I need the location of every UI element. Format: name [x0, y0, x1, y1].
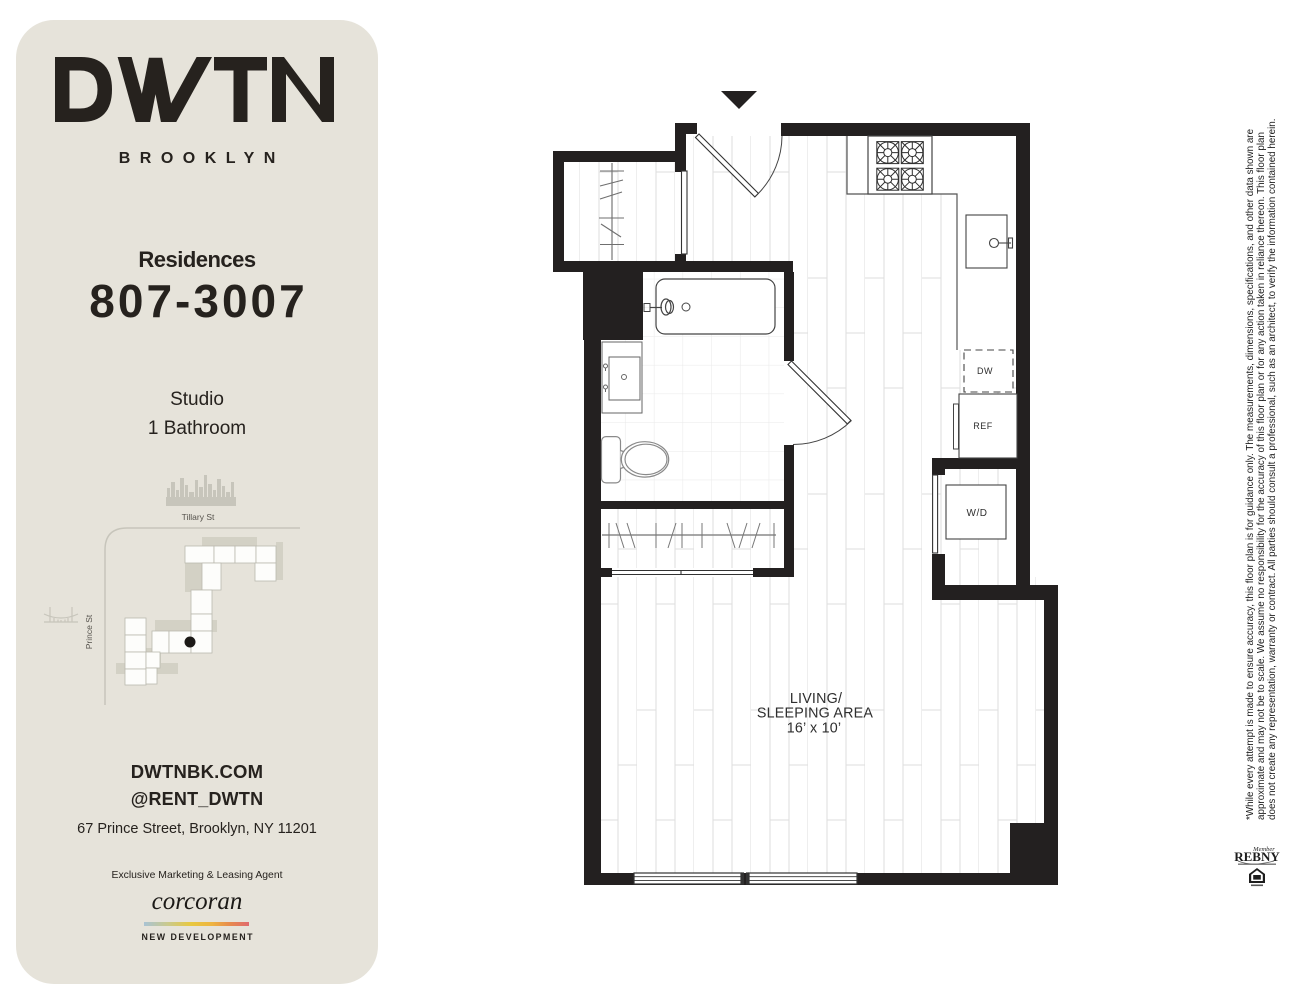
svg-text:SLEEPING AREA: SLEEPING AREA — [757, 706, 873, 722]
svg-text:DW: DW — [977, 366, 993, 376]
svg-text:approximate and may not be to: approximate and may not be to scale. We … — [1256, 132, 1267, 820]
svg-text:*While every attempt is made t: *While every attempt is made to ensure a… — [1245, 128, 1256, 820]
svg-text:W/D: W/D — [967, 508, 988, 519]
svg-text:does not create any representa: does not create any representation, warr… — [1267, 119, 1278, 820]
svg-text:REF: REF — [973, 421, 993, 431]
svg-text:16’ x 10’: 16’ x 10’ — [787, 721, 842, 737]
